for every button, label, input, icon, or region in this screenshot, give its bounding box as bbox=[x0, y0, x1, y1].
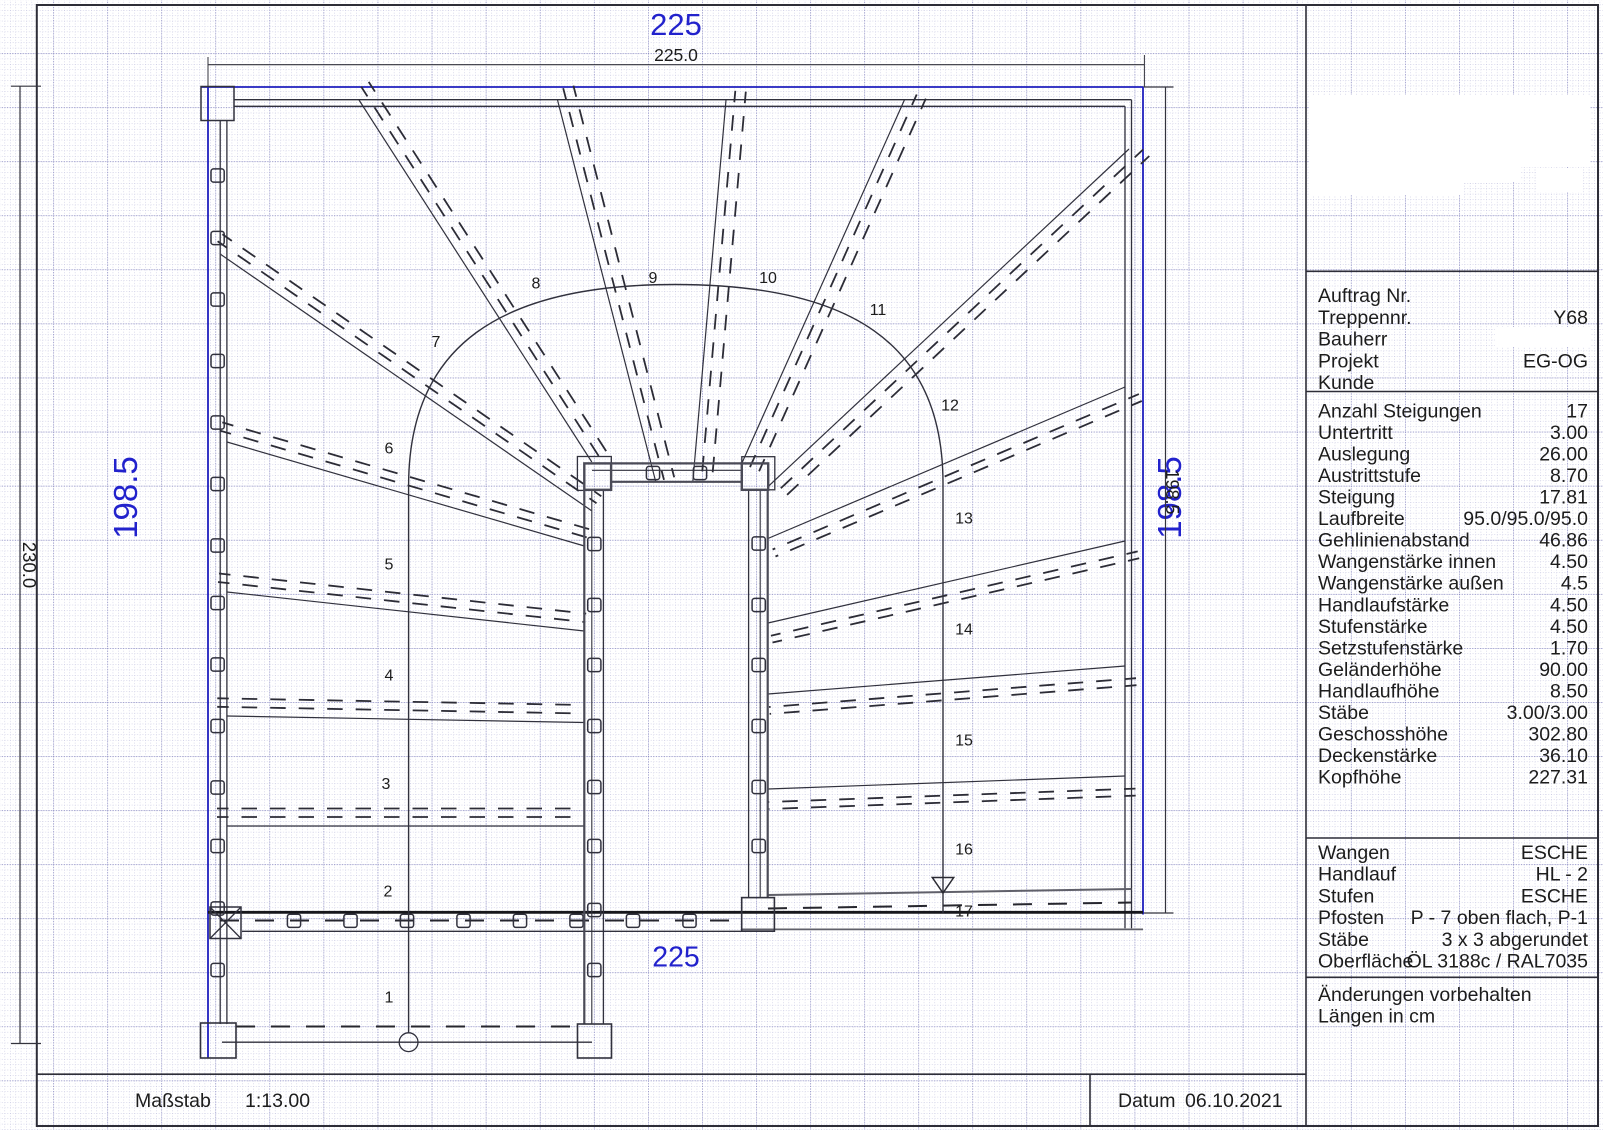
svg-text:Stäbe: Stäbe bbox=[1318, 702, 1369, 724]
svg-text:Setzstufenstärke: Setzstufenstärke bbox=[1318, 637, 1463, 659]
svg-text:Stäbe: Stäbe bbox=[1318, 929, 1369, 951]
svg-text:Handlaufhöhe: Handlaufhöhe bbox=[1318, 680, 1439, 702]
svg-text:4.5: 4.5 bbox=[1561, 573, 1588, 595]
svg-text:3.00: 3.00 bbox=[1550, 422, 1588, 444]
svg-text:1: 1 bbox=[385, 990, 394, 1007]
svg-text:1.70: 1.70 bbox=[1550, 637, 1588, 659]
svg-text:7: 7 bbox=[432, 334, 441, 351]
svg-text:Änderungen vorbehalten: Änderungen vorbehalten bbox=[1318, 984, 1532, 1006]
svg-text:230.0: 230.0 bbox=[19, 542, 40, 588]
svg-text:Y68: Y68 bbox=[1553, 307, 1588, 329]
svg-text:9: 9 bbox=[649, 270, 658, 287]
svg-text:Geschosshöhe: Geschosshöhe bbox=[1318, 724, 1448, 746]
svg-text:8.70: 8.70 bbox=[1550, 465, 1588, 487]
svg-text:36.10: 36.10 bbox=[1539, 745, 1588, 767]
svg-text:302.80: 302.80 bbox=[1528, 724, 1588, 746]
svg-text:ÖL 3188c / RAL7035: ÖL 3188c / RAL7035 bbox=[1407, 951, 1589, 973]
svg-text:Oberfläche: Oberfläche bbox=[1318, 951, 1413, 973]
svg-text:Stufen: Stufen bbox=[1318, 885, 1374, 907]
svg-text:Treppennr.: Treppennr. bbox=[1318, 307, 1412, 329]
svg-text:P - 7 oben flach, P-1: P - 7 oben flach, P-1 bbox=[1411, 907, 1588, 929]
svg-text:Wangenstärke innen: Wangenstärke innen bbox=[1318, 551, 1496, 573]
svg-text:6: 6 bbox=[385, 441, 394, 458]
svg-text:Handlaufstärke: Handlaufstärke bbox=[1318, 594, 1449, 616]
svg-text:EG-OG: EG-OG bbox=[1523, 350, 1588, 372]
svg-text:Auftrag Nr.: Auftrag Nr. bbox=[1318, 285, 1411, 307]
svg-text:17.81: 17.81 bbox=[1539, 487, 1588, 509]
svg-text:4.50: 4.50 bbox=[1550, 594, 1588, 616]
svg-text:Gehlinienabstand: Gehlinienabstand bbox=[1318, 530, 1470, 552]
svg-text:198.5: 198.5 bbox=[107, 456, 144, 539]
svg-text:Geländerhöhe: Geländerhöhe bbox=[1318, 659, 1442, 681]
svg-text:Stufenstärke: Stufenstärke bbox=[1318, 616, 1427, 638]
svg-text:5: 5 bbox=[385, 557, 394, 574]
svg-text:Kopfhöhe: Kopfhöhe bbox=[1318, 767, 1402, 789]
svg-text:2: 2 bbox=[384, 884, 393, 901]
svg-text:ESCHE: ESCHE bbox=[1521, 842, 1588, 864]
svg-text:4.50: 4.50 bbox=[1550, 551, 1588, 573]
svg-text:95.0/95.0/95.0: 95.0/95.0/95.0 bbox=[1463, 508, 1588, 530]
svg-text:4.50: 4.50 bbox=[1550, 616, 1588, 638]
svg-text:4: 4 bbox=[385, 668, 394, 685]
svg-text:Datum: Datum bbox=[1118, 1090, 1175, 1112]
svg-text:12: 12 bbox=[941, 398, 959, 415]
svg-text:HL - 2: HL - 2 bbox=[1536, 864, 1588, 886]
svg-text:Pfosten: Pfosten bbox=[1318, 907, 1384, 929]
svg-text:Steigung: Steigung bbox=[1318, 487, 1395, 509]
svg-text:06.10.2021: 06.10.2021 bbox=[1185, 1090, 1283, 1112]
svg-text:Untertritt: Untertritt bbox=[1318, 422, 1393, 444]
svg-text:90.00: 90.00 bbox=[1539, 659, 1588, 681]
svg-text:17: 17 bbox=[1566, 400, 1588, 422]
svg-text:Kunde: Kunde bbox=[1318, 372, 1374, 394]
svg-text:3 x 3 abgerundet: 3 x 3 abgerundet bbox=[1442, 929, 1589, 951]
svg-text:Maßstab: Maßstab bbox=[135, 1090, 211, 1112]
svg-text:Bauherr: Bauherr bbox=[1318, 329, 1388, 351]
svg-text:ESCHE: ESCHE bbox=[1521, 885, 1588, 907]
svg-text:Handlauf: Handlauf bbox=[1318, 864, 1397, 886]
svg-text:Anzahl Steigungen: Anzahl Steigungen bbox=[1318, 400, 1482, 422]
svg-text:14: 14 bbox=[955, 622, 973, 639]
svg-text:26.00: 26.00 bbox=[1539, 443, 1588, 465]
svg-text:Wangenstärke außen: Wangenstärke außen bbox=[1318, 573, 1504, 595]
svg-text:227.31: 227.31 bbox=[1528, 767, 1588, 789]
svg-text:Deckenstärke: Deckenstärke bbox=[1318, 745, 1437, 767]
svg-text:Auslegung: Auslegung bbox=[1318, 443, 1410, 465]
svg-text:Laufbreite: Laufbreite bbox=[1318, 508, 1405, 530]
svg-text:11: 11 bbox=[870, 302, 887, 319]
svg-text:225: 225 bbox=[650, 7, 702, 42]
svg-text:225.0: 225.0 bbox=[654, 45, 698, 65]
svg-text:Projekt: Projekt bbox=[1318, 350, 1379, 372]
svg-text:8.50: 8.50 bbox=[1550, 680, 1588, 702]
svg-text:225: 225 bbox=[652, 942, 700, 974]
svg-text:Austrittstufe: Austrittstufe bbox=[1318, 465, 1421, 487]
svg-text:3.00/3.00: 3.00/3.00 bbox=[1507, 702, 1588, 724]
svg-text:15: 15 bbox=[955, 733, 973, 750]
svg-text:Längen in cm: Längen in cm bbox=[1318, 1006, 1435, 1028]
svg-text:1:13.00: 1:13.00 bbox=[245, 1090, 310, 1112]
svg-text:3: 3 bbox=[382, 776, 391, 793]
svg-text:10: 10 bbox=[759, 270, 777, 287]
svg-text:17: 17 bbox=[955, 904, 973, 921]
svg-text:13: 13 bbox=[955, 511, 973, 528]
svg-text:8: 8 bbox=[532, 276, 541, 293]
svg-text:16: 16 bbox=[955, 842, 973, 859]
svg-text:46.86: 46.86 bbox=[1539, 530, 1588, 552]
svg-text:Wangen: Wangen bbox=[1318, 842, 1390, 864]
